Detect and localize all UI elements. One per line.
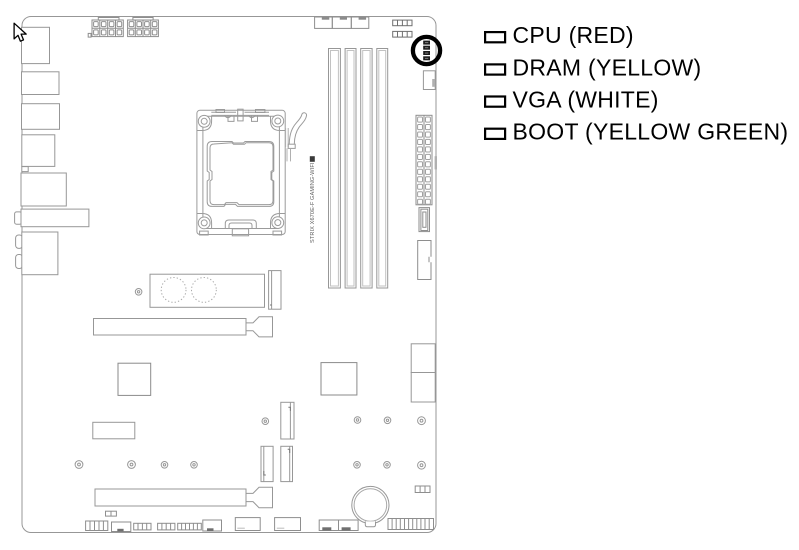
svg-text:STRIX X670E-F GAMING-WIFI: STRIX X670E-F GAMING-WIFI <box>310 162 316 243</box>
svg-text:DRAM (YELLOW): DRAM (YELLOW) <box>513 54 702 80</box>
svg-text:VGA (WHITE): VGA (WHITE) <box>513 87 659 113</box>
svg-text:CPU (RED): CPU (RED) <box>513 22 634 48</box>
svg-text:BOOT (YELLOW GREEN): BOOT (YELLOW GREEN) <box>513 119 789 145</box>
